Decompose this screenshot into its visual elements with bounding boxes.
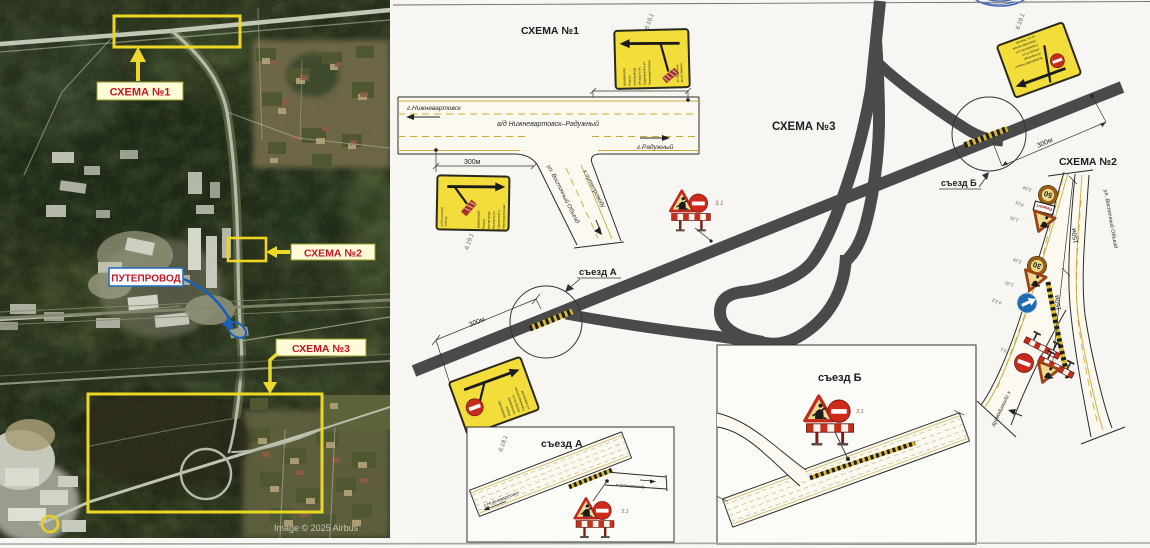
svg-text:Image © 2025 Airbus: Image © 2025 Airbus xyxy=(274,523,359,533)
svg-text:а/д Нижневартовск–Радужный: а/д Нижневартовск–Радужный xyxy=(497,120,599,128)
svg-text:объезд: объезд xyxy=(444,216,448,226)
svg-text:г.Радужный: г.Радужный xyxy=(637,143,674,151)
svg-text:ВНИМАНИЕ!: ВНИМАНИЕ! xyxy=(477,210,481,228)
svg-text:съезд Б: съезд Б xyxy=(941,178,977,188)
svg-text:Нижневартовская: Нижневартовская xyxy=(502,204,506,229)
svg-text:съезд Б: съезд Б xyxy=(818,372,862,384)
svg-text:г.Нижневартовск: г.Нижневартовск xyxy=(407,105,462,112)
svg-text:СХЕМА №2: СХЕМА №2 xyxy=(304,248,362,260)
svg-text:путепровода: путепровода xyxy=(632,67,636,85)
svg-text:СХЕМА №3: СХЕМА №3 xyxy=(292,343,350,355)
svg-text:СХЕМА №1: СХЕМА №1 xyxy=(521,25,579,37)
svg-text:300м: 300м xyxy=(464,159,481,166)
svg-text:Ремонт: Ремонт xyxy=(482,218,486,229)
svg-text:ВНИМАНИЕ!: ВНИМАНИЕ! xyxy=(622,68,626,86)
svg-text:Сараевской и ул.: Сараевской и ул. xyxy=(642,61,647,85)
svg-text:объезд по ул.: объезд по ул. xyxy=(492,210,496,229)
svg-text:Сараевской и: Сараевской и xyxy=(497,210,501,230)
svg-text:Нижневартовская: Нижневартовская xyxy=(647,60,652,85)
svg-text:объезд по ул.: объезд по ул. xyxy=(637,66,641,85)
svg-text:ПУТЕПРОВОД: ПУТЕПРОВОД xyxy=(111,274,180,285)
svg-text:съезд А: съезд А xyxy=(541,438,583,450)
svg-text:3.1: 3.1 xyxy=(715,201,723,207)
svg-text:до ул.Зимняя: до ул.Зимняя xyxy=(679,63,683,82)
svg-text:СХЕМА №1: СХЕМА №1 xyxy=(110,87,171,99)
svg-text:Ремонт: Ремонт xyxy=(627,75,631,86)
svg-text:путепровода: путепровода xyxy=(487,211,491,229)
svg-text:3.1: 3.1 xyxy=(856,409,864,415)
svg-text:3.1: 3.1 xyxy=(621,509,629,515)
svg-text:СХЕМА №3: СХЕМА №3 xyxy=(772,121,836,133)
svg-text:съезд А: съезд А xyxy=(579,267,617,278)
svg-text:СХЕМА №2: СХЕМА №2 xyxy=(1059,156,1117,168)
